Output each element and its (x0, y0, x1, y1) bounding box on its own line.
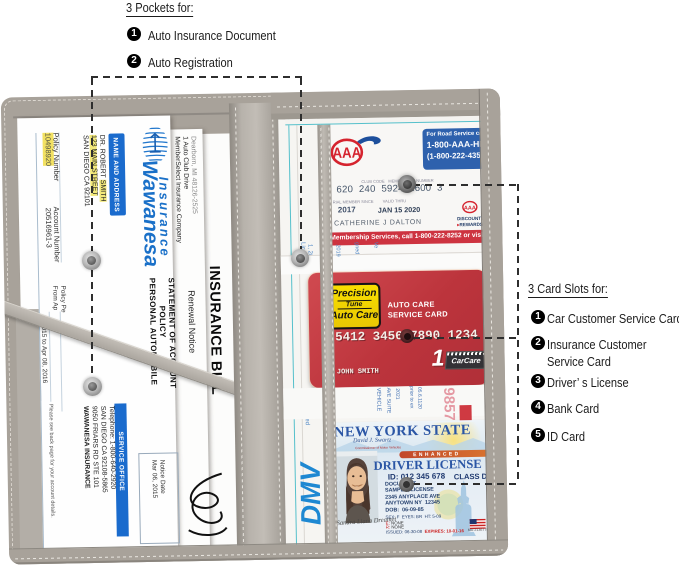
svg-text:AAA: AAA (332, 144, 361, 162)
svg-text:AAA: AAA (464, 205, 476, 211)
